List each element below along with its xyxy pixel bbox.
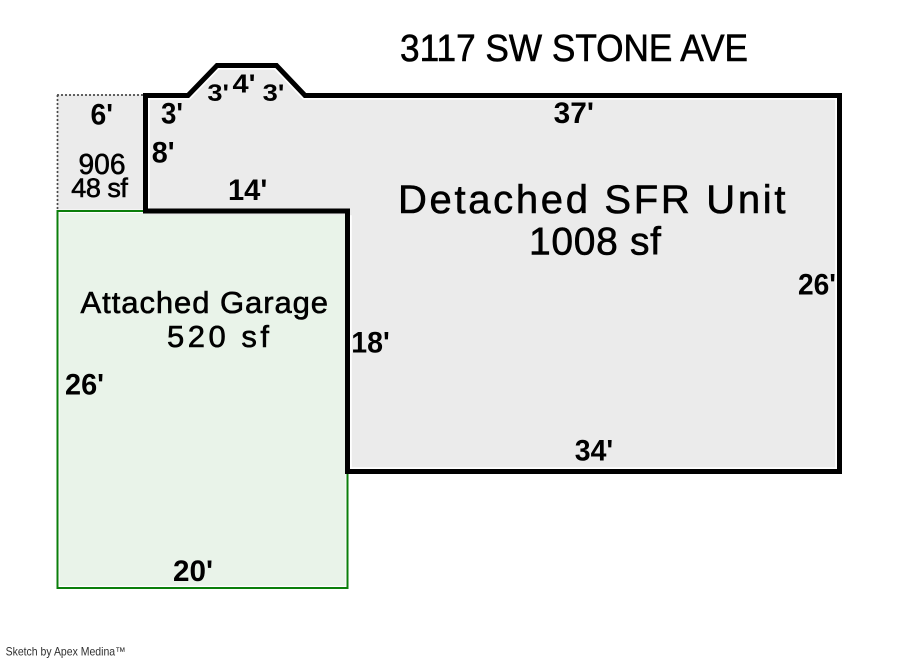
svg-text:6': 6' <box>91 99 114 132</box>
svg-text:520 sf: 520 sf <box>167 319 269 354</box>
svg-text:48 sf: 48 sf <box>71 173 128 203</box>
svg-text:3': 3' <box>161 98 183 131</box>
svg-text:37': 37' <box>554 97 594 130</box>
svg-text:34': 34' <box>575 435 613 468</box>
svg-text:4': 4' <box>233 69 256 99</box>
svg-text:26': 26' <box>65 369 104 402</box>
svg-text:Detached SFR Unit: Detached SFR Unit <box>398 178 786 222</box>
svg-text:Attached Garage: Attached Garage <box>81 285 328 320</box>
svg-text:8': 8' <box>152 137 175 170</box>
svg-text:26': 26' <box>798 269 836 302</box>
svg-text:3': 3' <box>207 80 229 107</box>
svg-text:20': 20' <box>173 555 213 588</box>
svg-text:1008 sf: 1008 sf <box>529 221 661 264</box>
svg-text:3': 3' <box>263 80 285 107</box>
svg-text:3117 SW STONE AVE: 3117 SW STONE AVE <box>400 28 748 70</box>
svg-text:18': 18' <box>351 327 390 360</box>
svg-text:Sketch by Apex Medina™: Sketch by Apex Medina™ <box>6 645 126 659</box>
svg-text:14': 14' <box>228 174 267 207</box>
